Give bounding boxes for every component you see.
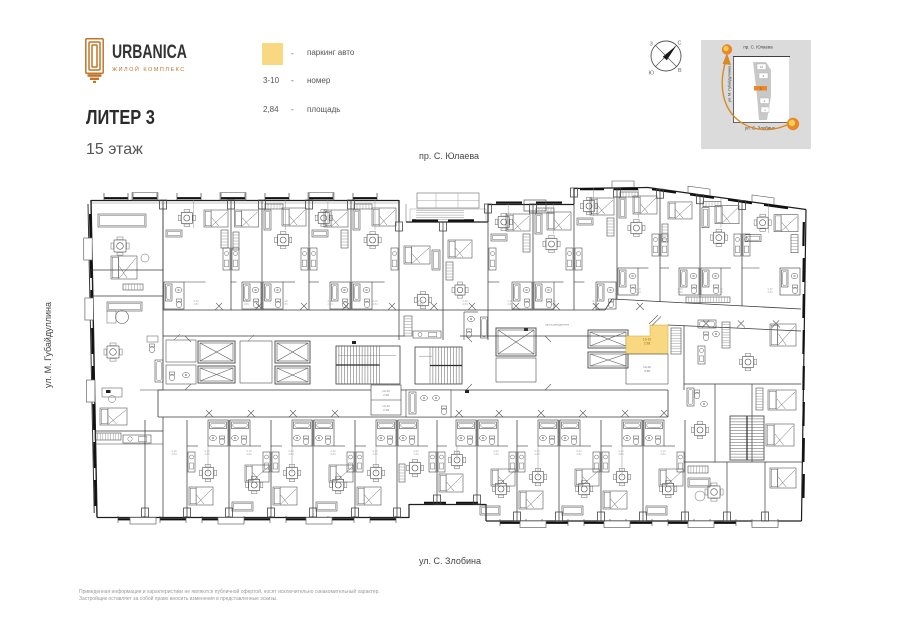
svg-text:2,84: 2,84 [282,302,288,306]
svg-text:2,84: 2,84 [327,302,333,306]
svg-text:2.98: 2.98 [383,408,389,412]
svg-text:2,84: 2,84 [534,452,540,456]
svg-text:2,84: 2,84 [330,452,336,456]
svg-text:3.98: 3.98 [644,369,650,373]
svg-text:2,84: 2,84 [453,452,459,456]
svg-text:2,84: 2,84 [635,290,641,294]
svg-text:2,84: 2,84 [288,452,294,456]
svg-text:шахта дымоудаления: шахта дымоудаления [545,324,570,327]
svg-text:2,84: 2,84 [493,452,499,456]
svg-text:2,84: 2,84 [193,302,199,306]
svg-text:2,84: 2,84 [717,290,723,294]
svg-text:2,84: 2,84 [507,302,513,306]
svg-text:2,84: 2,84 [243,302,249,306]
svg-text:2,84: 2,84 [618,452,624,456]
svg-text:2,84: 2,84 [660,452,666,456]
svg-text:2,84: 2,84 [372,302,378,306]
svg-text:2,84: 2,84 [417,302,423,306]
svg-text:2.98: 2.98 [644,342,650,346]
svg-text:2,84: 2,84 [413,452,419,456]
svg-text:2,84: 2,84 [171,452,177,456]
svg-text:2,84: 2,84 [246,452,252,456]
svg-text:2,84: 2,84 [767,290,773,294]
svg-text:2,84: 2,84 [677,290,683,294]
svg-text:2,84: 2,84 [204,452,210,456]
svg-text:2,84: 2,84 [372,452,378,456]
svg-text:2,84: 2,84 [462,302,468,306]
svg-text:2.98: 2.98 [383,393,389,397]
svg-text:2,84: 2,84 [576,452,582,456]
